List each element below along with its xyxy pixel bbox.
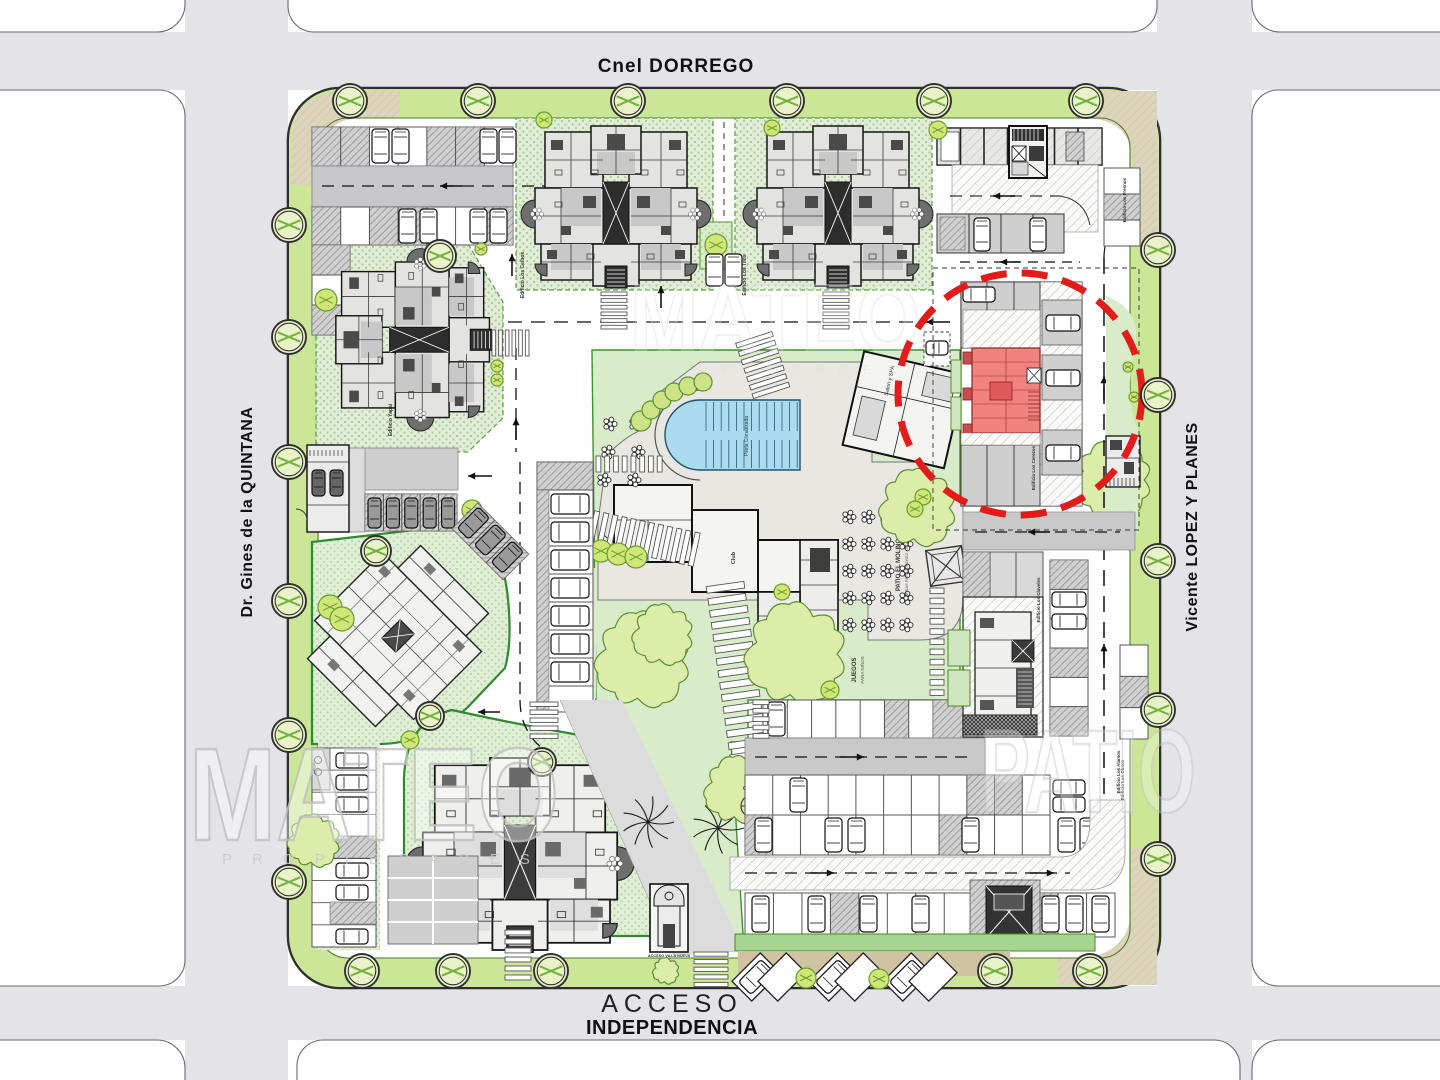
svg-text:MATEO: MATEO — [630, 264, 920, 373]
svg-text:P R O P I E D A D E S: P R O P I E D A D E S — [222, 851, 538, 868]
svg-text:Dr. Gines de la QUINTANA: Dr. Gines de la QUINTANA — [239, 407, 256, 618]
svg-text:PATIO EL MOLINO: PATIO EL MOLINO — [896, 539, 902, 592]
svg-text:ACCESO: ACCESO — [601, 990, 743, 1018]
svg-text:ACCESO VILLA NUEVA: ACCESO VILLA NUEVA — [648, 954, 690, 958]
svg-text:Edificio Yapai: Edificio Yapai — [388, 403, 394, 436]
svg-text:PARA NIÑOS: PARA NIÑOS — [859, 656, 865, 683]
svg-text:JUEGOS: JUEGOS — [852, 657, 858, 682]
svg-text:Edificio Los Claveles: Edificio Los Claveles — [1036, 577, 1041, 623]
svg-text:INDEPENDENCIA: INDEPENDENCIA — [586, 1017, 758, 1039]
svg-text:Edificio Los Fresnos: Edificio Los Fresnos — [1122, 177, 1127, 222]
svg-text:Vicente LOPEZ Y PLANES: Vicente LOPEZ Y PLANES — [1184, 422, 1201, 631]
svg-text:P R O P I E D A D E S: P R O P I E D A D E S — [648, 362, 902, 377]
svg-text:Cnel DORREGO: Cnel DORREGO — [598, 56, 755, 77]
svg-text:Edificio Los Cerezos: Edificio Los Cerezos — [1031, 445, 1036, 490]
svg-text:Edificio Los Ceibos: Edificio Los Ceibos — [520, 252, 526, 299]
svg-text:Pileta Climatizada: Pileta Climatizada — [744, 416, 750, 456]
svg-text:Club: Club — [731, 551, 737, 564]
svg-text:MATEO: MATEO — [189, 721, 559, 868]
